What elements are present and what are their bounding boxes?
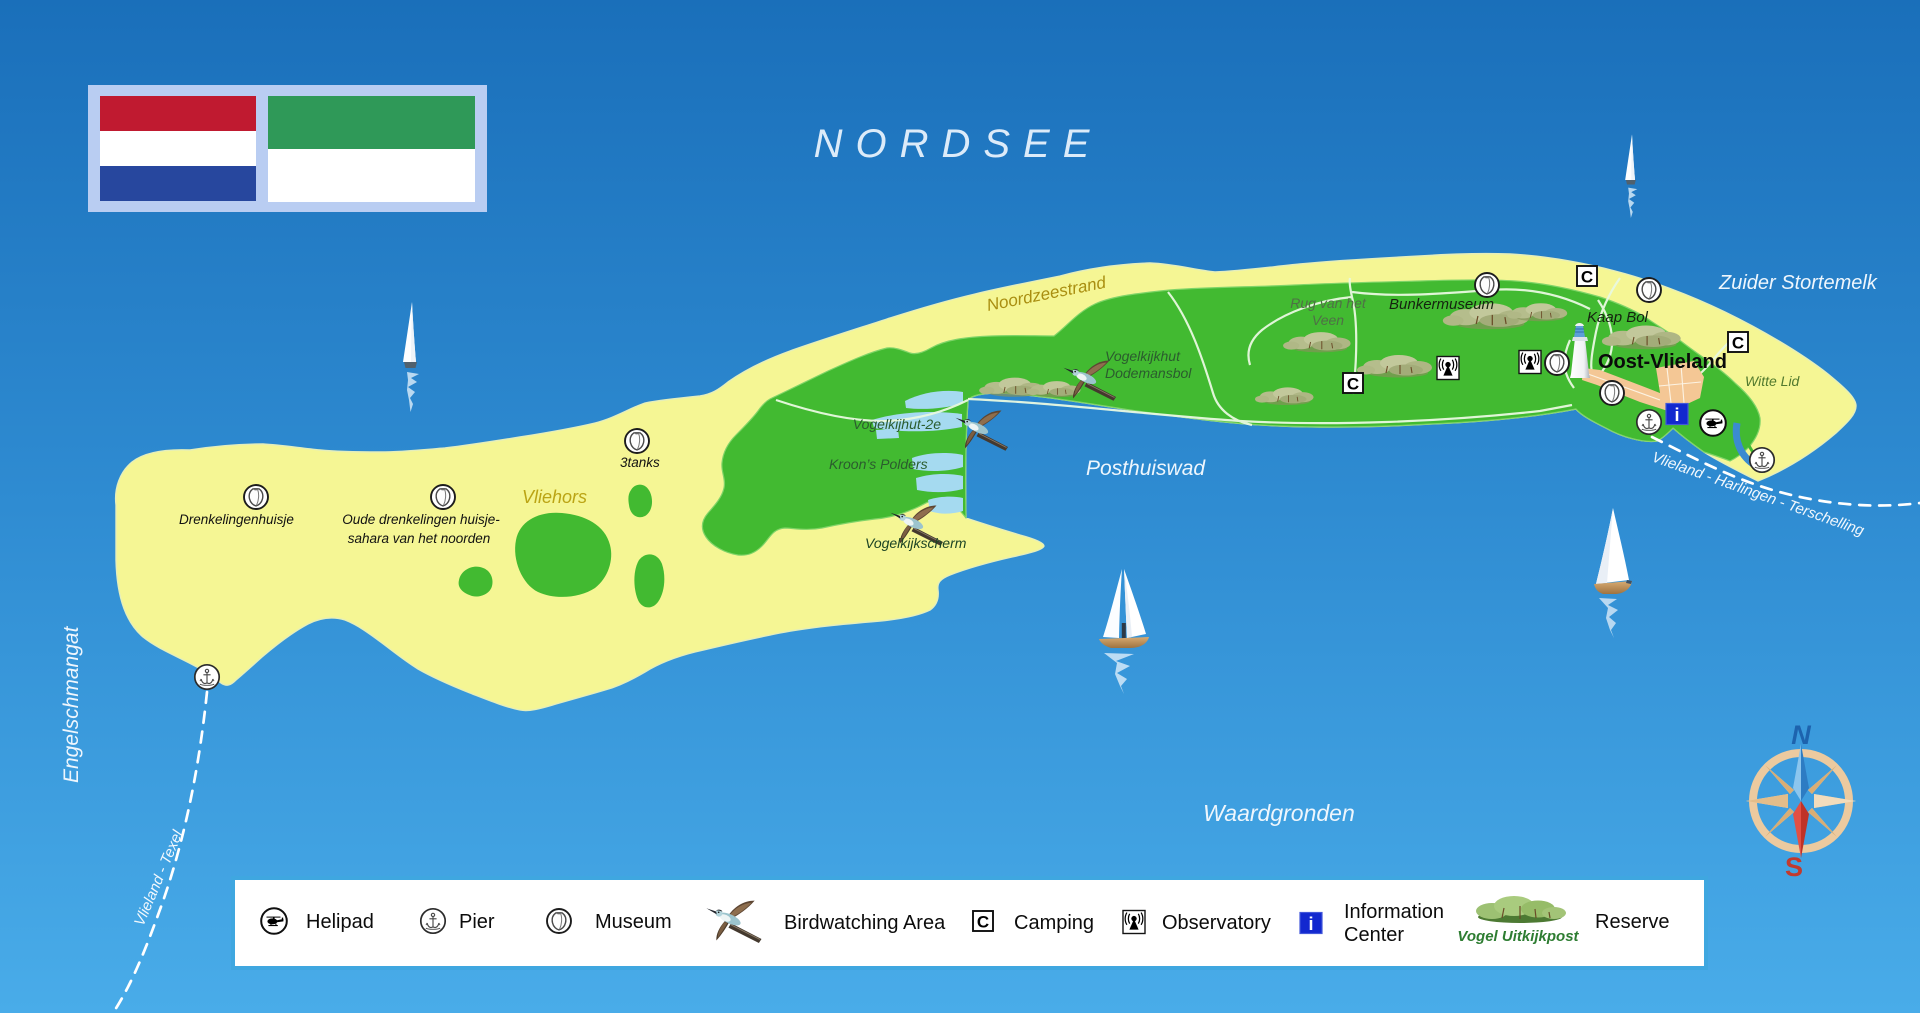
- svg-text:S: S: [1785, 852, 1803, 882]
- svg-text:Veen: Veen: [1312, 312, 1344, 328]
- svg-text:NORDSEE: NORDSEE: [814, 122, 1103, 166]
- svg-text:Bunkermuseum: Bunkermuseum: [1389, 296, 1494, 313]
- svg-text:Kaap Bol: Kaap Bol: [1587, 309, 1649, 326]
- svg-text:Vogelkijkhut: Vogelkijkhut: [1105, 348, 1181, 364]
- svg-text:Oude drenkelingen huisje-: Oude drenkelingen huisje-: [342, 512, 500, 527]
- svg-text:N: N: [1791, 720, 1811, 750]
- svg-text:Kroon’s Polders: Kroon’s Polders: [829, 456, 928, 472]
- svg-text:Oost-Vlieland: Oost-Vlieland: [1598, 351, 1727, 373]
- svg-text:sahara van het noorden: sahara van het noorden: [348, 531, 491, 546]
- svg-text:Birdwatching Area: Birdwatching Area: [784, 912, 946, 934]
- svg-text:Posthuiswad: Posthuiswad: [1086, 457, 1206, 480]
- svg-text:Reserve: Reserve: [1595, 911, 1669, 933]
- svg-text:Center: Center: [1344, 924, 1404, 946]
- svg-text:Camping: Camping: [1014, 912, 1094, 934]
- svg-text:Drenkelingenhuisje: Drenkelingenhuisje: [179, 512, 294, 527]
- svg-text:Waardgronden: Waardgronden: [1203, 800, 1355, 826]
- svg-text:Information: Information: [1344, 901, 1444, 923]
- svg-text:Museum: Museum: [595, 911, 672, 933]
- svg-text:Helipad: Helipad: [306, 911, 374, 933]
- svg-text:Witte Lid: Witte Lid: [1745, 373, 1801, 389]
- svg-text:Dodemansbol: Dodemansbol: [1105, 365, 1192, 381]
- svg-text:Engelschmangat: Engelschmangat: [60, 625, 83, 783]
- svg-text:Vogelkijkscherm: Vogelkijkscherm: [865, 535, 967, 551]
- svg-text:Pier: Pier: [459, 911, 495, 933]
- svg-text:Vogel Uitkijkpost: Vogel Uitkijkpost: [1457, 928, 1579, 945]
- svg-text:3tanks: 3tanks: [620, 455, 660, 470]
- svg-text:Rug van het: Rug van het: [1290, 295, 1367, 311]
- svg-text:Vogelkijhut-2e: Vogelkijhut-2e: [853, 416, 941, 432]
- svg-text:Zuider Stortemelk: Zuider Stortemelk: [1718, 272, 1878, 294]
- svg-text:Vliehors: Vliehors: [522, 487, 587, 507]
- svg-text:Observatory: Observatory: [1162, 912, 1271, 934]
